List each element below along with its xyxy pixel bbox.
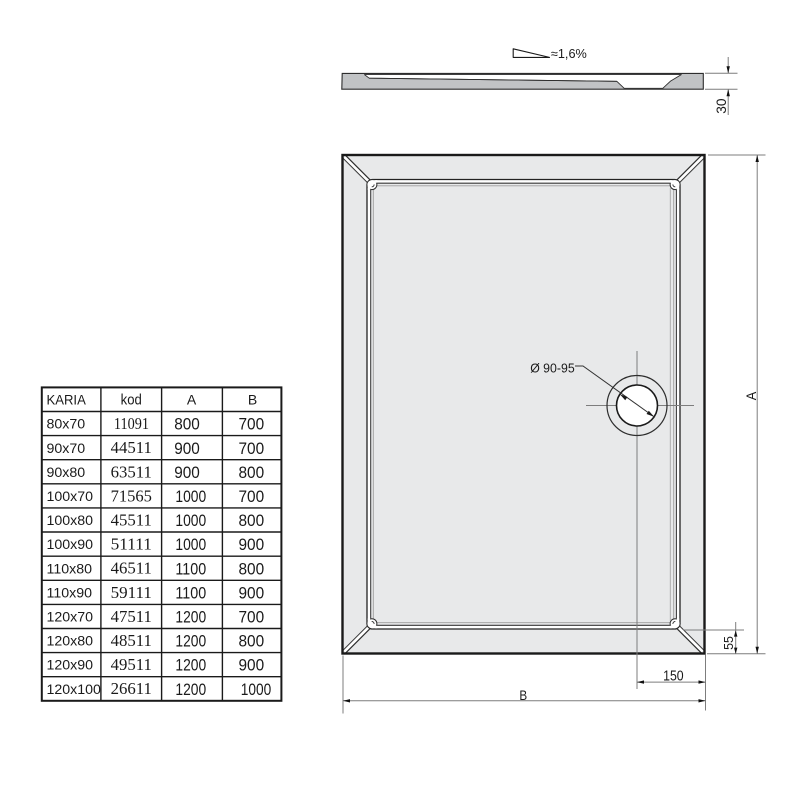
svg-text:1100: 1100 xyxy=(175,559,206,578)
svg-text:900: 900 xyxy=(238,535,264,554)
svg-text:110x80: 110x80 xyxy=(47,561,93,577)
svg-text:800: 800 xyxy=(238,463,264,482)
svg-text:1100: 1100 xyxy=(175,583,206,602)
svg-text:100x80: 100x80 xyxy=(47,513,94,529)
svg-text:100x70: 100x70 xyxy=(47,489,94,505)
svg-text:11091: 11091 xyxy=(114,414,149,433)
svg-text:55: 55 xyxy=(721,636,736,650)
svg-text:120x70: 120x70 xyxy=(47,610,94,626)
svg-text:1200: 1200 xyxy=(175,680,206,699)
svg-text:800: 800 xyxy=(238,632,264,651)
svg-text:120x90: 120x90 xyxy=(47,658,94,674)
svg-text:90x80: 90x80 xyxy=(47,465,86,481)
svg-text:110x90: 110x90 xyxy=(47,585,93,601)
svg-text:1000: 1000 xyxy=(175,535,206,554)
svg-text:1200: 1200 xyxy=(175,632,206,651)
svg-text:71565: 71565 xyxy=(111,486,152,505)
svg-text:63511: 63511 xyxy=(111,462,152,481)
svg-text:120x100: 120x100 xyxy=(47,682,102,698)
svg-text:A: A xyxy=(743,391,759,400)
svg-text:44511: 44511 xyxy=(111,438,152,457)
svg-text:100x90: 100x90 xyxy=(47,537,94,553)
svg-text:≈1,6%: ≈1,6% xyxy=(551,47,587,61)
svg-text:48511: 48511 xyxy=(111,631,152,650)
svg-text:51111: 51111 xyxy=(111,535,152,554)
svg-text:900: 900 xyxy=(238,583,264,602)
svg-text:49511: 49511 xyxy=(111,655,152,674)
svg-text:59111: 59111 xyxy=(111,583,152,602)
svg-text:kod: kod xyxy=(121,393,142,409)
svg-text:700: 700 xyxy=(238,608,264,627)
svg-text:Ø 90-95: Ø 90-95 xyxy=(530,360,575,375)
svg-text:1200: 1200 xyxy=(175,656,206,675)
svg-text:150: 150 xyxy=(663,668,684,684)
svg-text:120x80: 120x80 xyxy=(47,634,94,650)
svg-text:1000: 1000 xyxy=(175,487,206,506)
svg-text:47511: 47511 xyxy=(111,607,152,626)
svg-text:800: 800 xyxy=(238,559,264,578)
svg-text:1000: 1000 xyxy=(175,511,206,530)
svg-text:80x70: 80x70 xyxy=(47,417,86,433)
svg-text:45511: 45511 xyxy=(111,511,152,530)
svg-text:900: 900 xyxy=(174,463,200,482)
svg-text:B: B xyxy=(248,392,257,408)
svg-text:700: 700 xyxy=(238,439,264,458)
svg-text:700: 700 xyxy=(238,415,264,434)
svg-text:1200: 1200 xyxy=(175,608,206,627)
svg-text:46511: 46511 xyxy=(111,559,152,578)
svg-text:B: B xyxy=(519,688,527,703)
svg-text:30: 30 xyxy=(714,98,730,113)
svg-text:1000: 1000 xyxy=(241,680,272,699)
svg-text:800: 800 xyxy=(174,415,200,434)
svg-text:26611: 26611 xyxy=(111,679,152,698)
svg-text:800: 800 xyxy=(238,511,264,530)
svg-text:900: 900 xyxy=(174,439,200,458)
svg-text:90x70: 90x70 xyxy=(47,441,86,457)
svg-text:700: 700 xyxy=(238,487,264,506)
svg-text:900: 900 xyxy=(238,656,264,675)
svg-text:KARIA: KARIA xyxy=(47,392,87,408)
svg-text:A: A xyxy=(187,392,197,408)
